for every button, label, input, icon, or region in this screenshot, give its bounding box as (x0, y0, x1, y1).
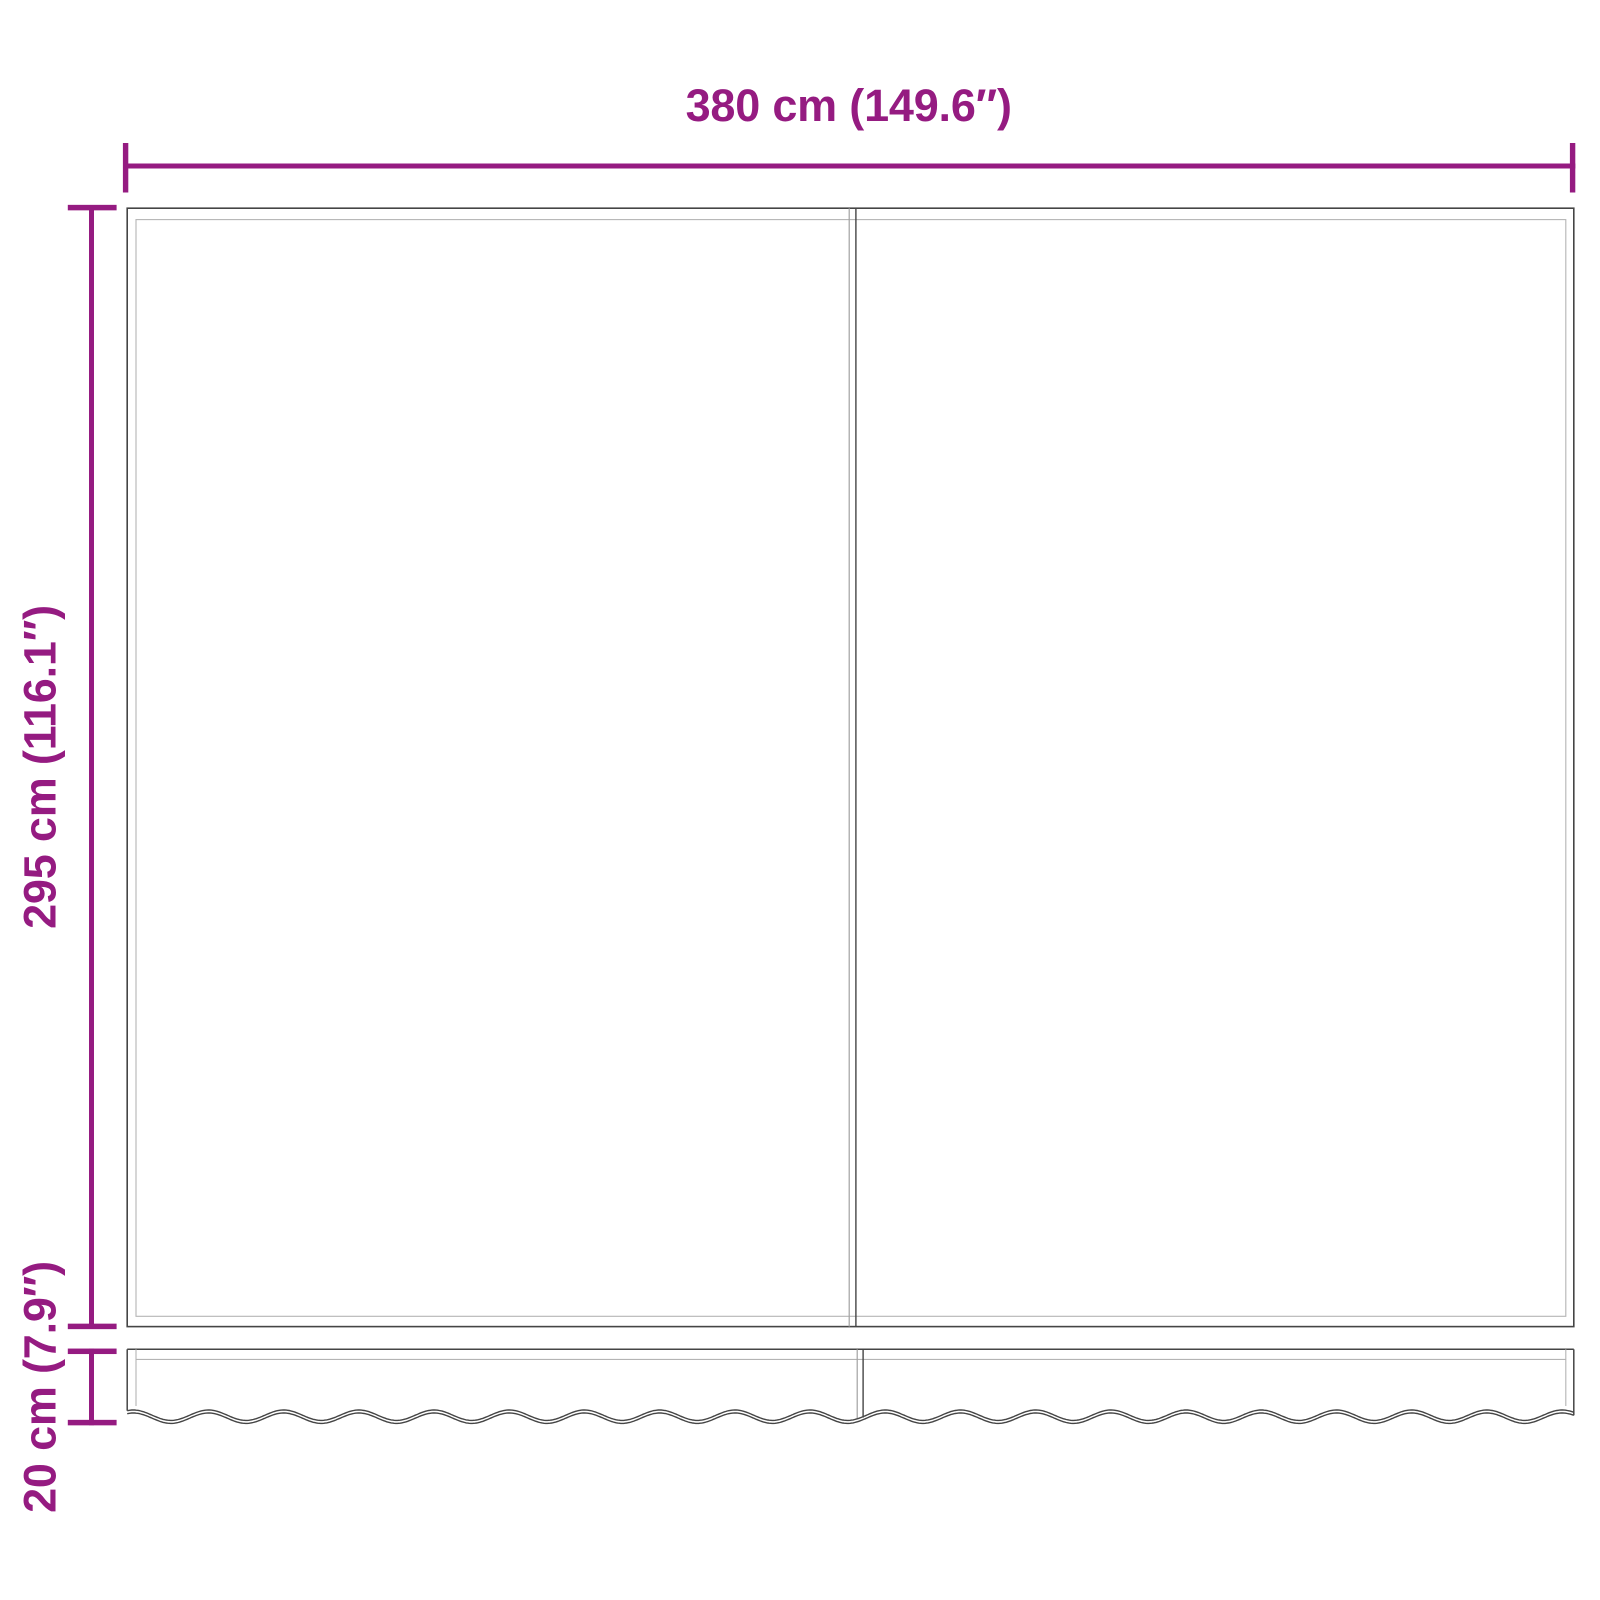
svg-text:380 cm (149.6″): 380 cm (149.6″) (686, 80, 1012, 131)
svg-text:20 cm (7.9″): 20 cm (7.9″) (14, 1261, 65, 1513)
svg-text:295 cm (116.1″): 295 cm (116.1″) (14, 605, 65, 929)
